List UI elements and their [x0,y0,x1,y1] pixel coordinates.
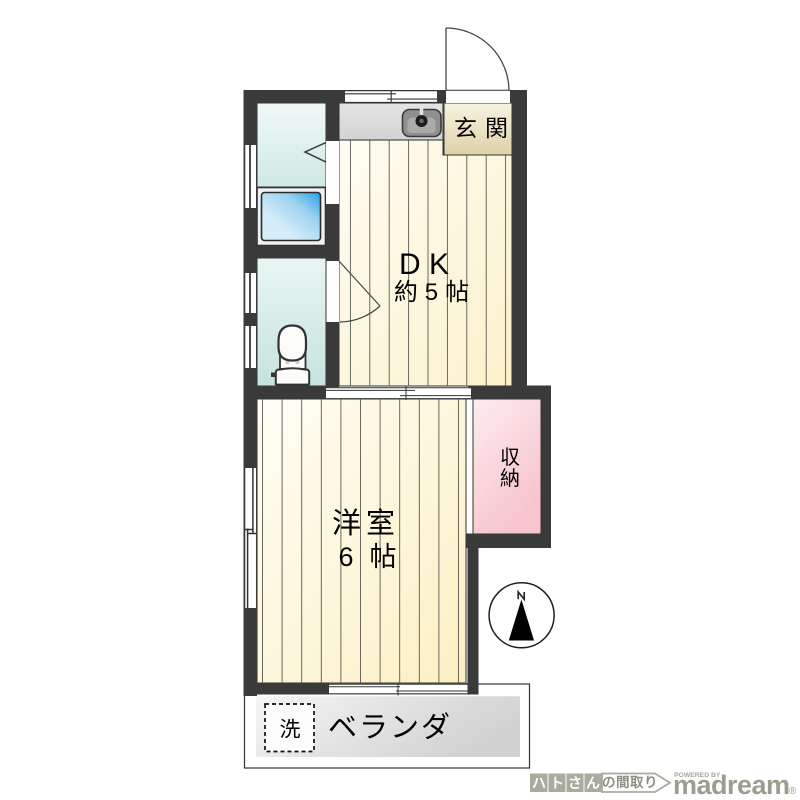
svg-text:6: 6 [338,542,353,572]
svg-text:ん: ん [586,775,600,791]
svg-text:さ: さ [568,775,582,791]
svg-text:玄関: 玄関 [454,115,516,141]
svg-text:収: 収 [500,446,520,469]
svg-text:®: ® [789,786,797,797]
svg-text:ハ: ハ [532,775,546,791]
svg-text:約5帖: 約5帖 [394,279,476,306]
svg-text:洋室: 洋室 [332,507,400,540]
svg-text:ベランダ: ベランダ [328,711,452,744]
svg-text:納: 納 [500,467,520,490]
svg-text:の間取り: の間取り [602,775,658,790]
svg-text:D K: D K [399,248,449,281]
svg-text:洗: 洗 [280,719,301,742]
svg-text:帖: 帖 [370,542,397,572]
svg-text:madream: madream [673,770,790,800]
svg-text:ト: ト [550,775,564,791]
